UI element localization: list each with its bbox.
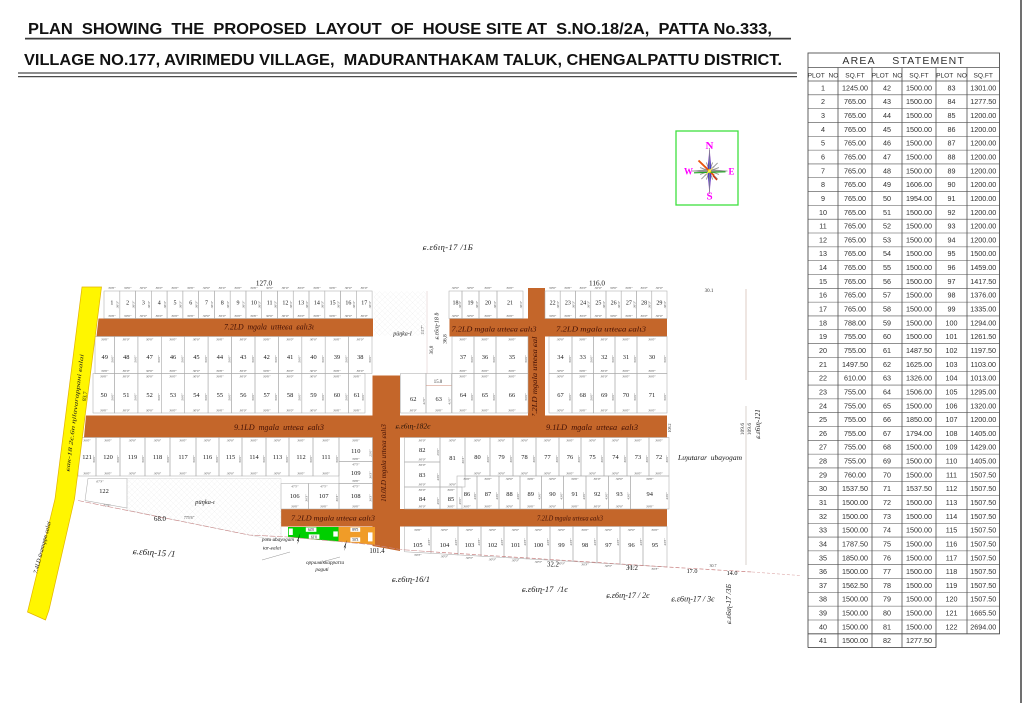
svg-text:50'0″: 50'0″ [181,393,185,401]
svg-text:30'0″: 30'0″ [571,504,579,508]
svg-text:ɕ.ε6ιɳ-16/1: ɕ.ε6ιɳ-16/1 [391,574,430,584]
svg-text:36'3″: 36'3″ [458,300,462,308]
svg-text:71: 71 [883,484,891,493]
svg-text:1500.00: 1500.00 [906,125,932,134]
svg-text:1500.00: 1500.00 [906,305,932,314]
svg-text:30'0″: 30'0″ [419,504,427,508]
svg-text:N: N [706,140,714,152]
svg-text:108.2: 108.2 [667,424,672,433]
svg-text:ɕ.ε6ιɳ-17 /1Б: ɕ.ε6ιɳ-17 /1Б [422,242,473,252]
svg-text:1500.00: 1500.00 [906,539,932,548]
svg-text:SQ.FT: SQ.FT [974,73,993,80]
svg-text:78: 78 [521,454,527,461]
svg-text:121: 121 [946,609,958,618]
svg-text:1794.00: 1794.00 [906,429,932,438]
svg-text:30'0″: 30'0″ [616,504,624,508]
svg-text:43'5″: 43'5″ [663,538,667,546]
svg-text:1500.00: 1500.00 [906,291,932,300]
svg-text:30'0″: 30'0″ [352,457,360,461]
svg-text:1500.00: 1500.00 [906,622,932,631]
svg-text:ɕ.ε6ιɳ-17 /1є: ɕ.ε6ιɳ-17 /1є [521,584,568,594]
svg-text:67'3″: 67'3″ [96,480,104,484]
svg-text:66: 66 [509,392,515,399]
svg-text:112: 112 [296,454,305,461]
svg-text:1562.50: 1562.50 [842,581,868,590]
svg-text:1500.00: 1500.00 [906,470,932,479]
svg-text:30'0″: 30'0″ [452,286,460,290]
svg-text:1500.00: 1500.00 [970,249,996,258]
svg-text:56: 56 [240,392,246,399]
svg-text:36'3″: 36'3″ [602,300,606,308]
svg-text:50'0″: 50'0″ [568,393,572,401]
svg-text:30'0″: 30'0″ [447,488,455,492]
svg-text:30'0″: 30'0″ [557,408,565,412]
svg-text:21: 21 [819,360,827,369]
svg-text:99: 99 [558,542,564,549]
svg-text:7.2LD mɡala uτŧŧeɕa ɕalι3ι: 7.2LD mɡala uτŧŧeɕa ɕalι3ι [224,322,315,332]
svg-text:30'0″: 30'0″ [240,408,248,412]
svg-text:23: 23 [565,301,571,307]
svg-text:30'0″: 30'0″ [123,408,131,412]
svg-text:72: 72 [656,454,662,461]
svg-text:30'0″: 30'0″ [600,455,604,463]
svg-text:30'0″: 30'0″ [250,439,258,443]
svg-text:36'3″: 36'3″ [289,300,293,308]
svg-text:50'0″: 50'0″ [227,355,231,363]
svg-text:30'0″: 30'0″ [419,457,427,461]
svg-text:1277.50: 1277.50 [970,97,996,106]
svg-text:56: 56 [883,277,891,286]
svg-text:30'0″: 30'0″ [357,338,365,342]
svg-text:755.00: 755.00 [844,429,866,438]
svg-text:50'0″: 50'0″ [663,355,667,363]
svg-text:30'0″: 30'0″ [310,338,318,342]
svg-text:610.00: 610.00 [844,374,866,383]
svg-text:30'3″: 30'3″ [605,564,613,568]
svg-text:30'0″: 30'0″ [557,375,565,379]
svg-text:94: 94 [948,235,956,244]
svg-text:1200.00: 1200.00 [970,415,996,424]
svg-text:36'3″: 36'3″ [632,300,636,308]
svg-text:30'0″: 30'0″ [298,286,306,290]
svg-text:1500.00: 1500.00 [842,567,868,576]
svg-text:57: 57 [883,291,891,300]
svg-text:50'0″: 50'0″ [335,455,339,463]
svg-text:30'0″: 30'0″ [333,369,341,373]
svg-text:1500.00: 1500.00 [906,332,932,341]
svg-text:3: 3 [821,111,825,120]
svg-text:30'0″: 30'0″ [665,455,669,463]
svg-text:1320.00: 1320.00 [970,401,996,410]
svg-text:30'0″: 30'0″ [274,439,282,443]
svg-text:47: 47 [883,153,891,162]
svg-text:43'5″: 43'5″ [427,538,431,546]
svg-text:88: 88 [948,153,956,162]
svg-text:50'0″: 50'0″ [157,393,161,401]
svg-text:97: 97 [948,277,956,286]
svg-text:30'0″: 30'0″ [216,375,224,379]
svg-text:30'0″: 30'0″ [612,471,620,475]
svg-text:765.00: 765.00 [844,305,866,314]
svg-text:1500.00: 1500.00 [906,97,932,106]
svg-text:82: 82 [419,447,425,454]
svg-text:36'3″: 36'3″ [210,300,214,308]
svg-text:30'0″: 30'0″ [104,439,112,443]
svg-text:113: 113 [273,454,282,461]
svg-text:79: 79 [883,595,891,604]
svg-text:90: 90 [549,491,555,498]
svg-text:30'0″: 30'0″ [601,369,609,373]
svg-text:117: 117 [178,454,188,461]
svg-text:74: 74 [883,526,891,535]
svg-text:36'3″: 36'3″ [194,300,198,308]
svg-text:96: 96 [628,542,634,549]
svg-text:113: 113 [946,498,957,507]
svg-text:755.00: 755.00 [844,457,866,466]
svg-text:30'0″: 30'0″ [527,504,535,508]
svg-text:W: W [684,167,693,177]
svg-text:30.1: 30.1 [705,289,714,294]
svg-text:30'0″: 30'0″ [557,338,565,342]
svg-text:41'0″: 41'0″ [422,397,426,405]
svg-text:30'0″: 30'0″ [352,504,360,508]
svg-text:1429.00: 1429.00 [970,443,996,452]
svg-text:11: 11 [267,301,273,307]
svg-text:50'0″: 50'0″ [251,393,255,401]
svg-text:30'0″: 30'0″ [286,338,294,342]
svg-text:765.00: 765.00 [844,139,866,148]
svg-text:30'0″: 30'0″ [83,439,91,443]
svg-text:765.00: 765.00 [844,235,866,244]
svg-text:62: 62 [410,396,416,403]
svg-text:30'0″: 30'0″ [616,477,624,481]
svg-text:30'0″: 30'0″ [169,369,177,373]
svg-text:30'0″: 30'0″ [291,504,299,508]
svg-text:ŧar-ɕalai: ŧar-ɕalai [263,546,282,552]
svg-text:53: 53 [883,235,891,244]
svg-text:15.0: 15.0 [434,380,443,385]
svg-text:30'0″: 30'0″ [187,286,195,290]
svg-text:30'0″: 30'0″ [203,286,211,290]
svg-text:30'0″: 30'0″ [108,314,116,318]
svg-text:1506.00: 1506.00 [906,387,932,396]
svg-text:91: 91 [572,491,578,498]
svg-text:30'3″: 30'3″ [461,456,465,464]
svg-text:47'5″: 47'5″ [352,485,360,489]
svg-text:25: 25 [819,415,827,424]
svg-text:68: 68 [580,392,586,399]
svg-text:45'0″: 45'0″ [458,497,462,505]
svg-text:32.2: 32.2 [547,562,559,569]
svg-text:30'0″: 30'0″ [628,528,636,532]
svg-text:50'0″: 50'0″ [215,455,219,463]
svg-text:30: 30 [819,484,827,493]
svg-text:101: 101 [946,332,958,341]
svg-text:59: 59 [310,392,316,399]
svg-text:36'3″: 36'3″ [475,300,479,308]
svg-text:19: 19 [468,301,474,307]
svg-text:1625.00: 1625.00 [906,360,932,369]
svg-text:E: E [728,167,734,177]
svg-text:30'0″: 30'0″ [216,338,224,342]
svg-text:30'0″: 30'0″ [124,314,132,318]
svg-text:50'0″: 50'0″ [633,393,637,401]
svg-text:45: 45 [883,125,891,134]
svg-text:30'0″: 30'0″ [481,338,489,342]
svg-text:30'0″: 30'0″ [193,369,201,373]
svg-text:1500.00: 1500.00 [906,166,932,175]
svg-text:765.00: 765.00 [844,153,866,162]
svg-text:30'0″: 30'0″ [108,286,116,290]
svg-text:1500.00: 1500.00 [842,595,868,604]
svg-text:poŧu uƅaуoɡam: poŧu uƅaуoɡam [261,537,294,543]
svg-text:5: 5 [173,301,176,307]
svg-text:30'0″: 30'0″ [310,375,318,379]
svg-text:1500.00: 1500.00 [842,498,868,507]
svg-text:33: 33 [819,526,827,535]
svg-text:43'0″: 43'0″ [665,492,669,500]
svg-text:9.1LD mɡala uτŧeɕa ɕalι3: 9.1LD mɡala uτŧeɕa ɕalι3 [234,422,324,432]
svg-text:30'0″: 30'0″ [216,408,224,412]
svg-text:26: 26 [611,301,617,307]
svg-text:30'0″: 30'0″ [449,482,457,486]
svg-text:755.00: 755.00 [844,332,866,341]
svg-text:76: 76 [883,553,891,562]
svg-text:42: 42 [263,354,269,361]
svg-text:81: 81 [883,622,891,631]
svg-text:78: 78 [883,581,891,590]
svg-text:30'0″: 30'0″ [286,375,294,379]
svg-text:1500.00: 1500.00 [906,595,932,604]
svg-text:30'0″: 30'0″ [219,286,227,290]
svg-text:5: 5 [821,139,825,148]
svg-text:30'0″: 30'0″ [610,314,618,318]
svg-text:1500.00: 1500.00 [906,111,932,120]
svg-text:50'0″: 50'0″ [110,393,114,401]
svg-text:30'0″: 30'0″ [227,439,235,443]
svg-text:30'0″: 30'0″ [484,504,492,508]
svg-text:30'0″: 30'0″ [463,504,471,508]
svg-text:110: 110 [351,448,360,455]
svg-text:30'0″: 30'0″ [566,471,574,475]
svg-text:43'0″: 43'0″ [626,492,630,500]
svg-text:20: 20 [485,301,491,307]
svg-text:114: 114 [946,512,957,521]
svg-text:30'0″: 30'0″ [345,286,353,290]
svg-text:92: 92 [948,208,956,217]
svg-text:30'0″: 30'0″ [193,338,201,342]
svg-text:30'3″: 30'3″ [558,561,566,565]
svg-text:30'0″: 30'0″ [357,369,365,373]
svg-text:1200.00: 1200.00 [970,125,996,134]
svg-text:30'3″: 30'3″ [441,555,449,559]
svg-text:120: 120 [103,454,113,461]
svg-text:30'0″: 30'0″ [648,369,656,373]
svg-text:10: 10 [819,208,827,217]
svg-text:27: 27 [626,301,632,307]
svg-text:22: 22 [819,374,827,383]
svg-text:30'0″: 30'0″ [263,375,271,379]
svg-text:30'0″: 30'0″ [171,314,179,318]
svg-text:36'3″: 36'3″ [617,300,621,308]
svg-text:30'0″: 30'0″ [474,471,482,475]
svg-text:43'0″: 43'0″ [604,492,608,500]
svg-text:9: 9 [821,194,825,203]
svg-text:30'0″: 30'0″ [459,369,467,373]
svg-text:68: 68 [883,443,891,452]
svg-text:91: 91 [948,194,956,203]
svg-text:16: 16 [819,291,827,300]
svg-text:58: 58 [287,392,293,399]
svg-text:VILLAGE NO.177, AVIRIMEDU VILL: VILLAGE NO.177, AVIRIMEDU VILLAGE, MADUR… [24,52,782,69]
svg-text:760.00: 760.00 [844,470,866,479]
svg-text:104: 104 [946,374,958,383]
svg-text:75: 75 [589,454,595,461]
svg-text:49: 49 [883,180,891,189]
svg-text:65: 65 [482,392,488,399]
svg-text:15: 15 [819,277,827,286]
svg-text:30'0″: 30'0″ [169,375,177,379]
svg-text:1: 1 [110,301,113,307]
svg-text:89: 89 [528,491,534,498]
svg-text:30'0″: 30'0″ [333,338,341,342]
svg-text:105: 105 [413,542,423,549]
svg-text:1850.00: 1850.00 [906,415,932,424]
svg-text:30'0″: 30'0″ [171,286,179,290]
svg-text:109.6: 109.6 [747,423,753,436]
svg-text:50'0″: 50'0″ [285,455,289,463]
svg-text:30'0″: 30'0″ [580,286,588,290]
svg-text:50'0″: 50'0″ [524,355,528,363]
svg-text:765.00: 765.00 [844,111,866,120]
svg-text:SQ.FT: SQ.FT [845,73,864,80]
svg-text:105: 105 [946,387,958,396]
svg-text:30'3″: 30'3″ [512,559,520,563]
svg-text:119: 119 [946,581,957,590]
svg-text:1500.00: 1500.00 [906,401,932,410]
svg-text:109.6: 109.6 [740,423,746,436]
svg-text:36,8: 36,8 [430,345,435,354]
svg-text:30'0″: 30'0″ [595,314,603,318]
svg-text:30'0″: 30'0″ [474,439,482,443]
svg-text:118: 118 [946,567,957,576]
svg-text:43'0″: 43'0″ [537,492,541,500]
svg-text:AREA STATEMENT: AREA STATEMENT [842,55,965,67]
svg-text:765.00: 765.00 [844,180,866,189]
svg-text:1500.00: 1500.00 [906,498,932,507]
svg-text:43: 43 [883,97,891,106]
svg-text:84: 84 [419,496,426,503]
svg-text:102: 102 [946,346,958,355]
svg-text:1200.00: 1200.00 [970,166,996,175]
svg-text:44: 44 [217,354,224,361]
svg-text:50'0″: 50'0″ [492,355,496,363]
svg-text:30'0″: 30'0″ [484,314,492,318]
svg-text:43'5″: 43'5″ [500,538,504,546]
svg-text:30'0″: 30'0″ [193,408,201,412]
svg-text:28: 28 [819,457,827,466]
svg-text:30'0″: 30'0″ [282,286,290,290]
svg-text:50'0″: 50'0″ [192,455,196,463]
svg-text:30'0″: 30'0″ [623,455,627,463]
svg-text:30'0″: 30'0″ [646,477,654,481]
svg-text:36'3″: 36'3″ [116,300,120,308]
svg-text:30'0″: 30'0″ [645,455,649,463]
svg-text:30'0″: 30'0″ [489,528,497,532]
svg-text:30'0″: 30'0″ [449,439,457,443]
svg-text:1261.50: 1261.50 [970,332,996,341]
svg-text:30'0″: 30'0″ [467,314,475,318]
svg-text:71: 71 [649,392,655,399]
svg-text:27: 27 [819,443,827,452]
svg-text:30'0″: 30'0″ [169,408,177,412]
svg-text:1200.00: 1200.00 [970,111,996,120]
svg-text:1500.00: 1500.00 [906,83,932,92]
svg-text:84: 84 [948,97,956,106]
svg-text:101.4: 101.4 [369,548,385,555]
svg-text:120: 120 [946,595,958,604]
svg-text:30'0″: 30'0″ [594,477,602,481]
svg-text:30'0″: 30'0″ [656,314,664,318]
svg-text:30'0″: 30'0″ [282,314,290,318]
svg-text:50'0″: 50'0″ [470,355,474,363]
svg-text:30'0″: 30'0″ [610,286,618,290]
svg-text:30'0″: 30'0″ [498,471,506,475]
svg-text:32: 32 [601,354,607,361]
svg-text:6: 6 [821,153,825,162]
svg-text:1295.00: 1295.00 [970,387,996,396]
svg-text:30'0″: 30'0″ [333,375,341,379]
svg-text:98: 98 [948,291,956,300]
svg-text:1500.00: 1500.00 [842,526,868,535]
svg-text:28: 28 [641,301,647,307]
svg-text:1500.00: 1500.00 [906,526,932,535]
svg-text:30'0″: 30'0″ [154,439,162,443]
svg-text:50'0″: 50'0″ [166,455,170,463]
svg-text:43'5″: 43'5″ [639,538,643,546]
svg-text:1200.00: 1200.00 [970,208,996,217]
svg-text:25'0″: 25'0″ [368,449,372,457]
svg-text:51: 51 [883,208,891,217]
svg-text:95: 95 [652,542,658,549]
svg-text:30'0″: 30'0″ [203,314,211,318]
svg-text:14.0: 14.0 [727,570,738,577]
svg-text:30'0″: 30'0″ [625,314,633,318]
svg-text:45: 45 [193,354,199,361]
svg-text:755.00: 755.00 [844,346,866,355]
svg-text:29: 29 [819,470,827,479]
svg-text:36'3″: 36'3″ [226,300,230,308]
svg-text:50'0″: 50'0″ [181,355,185,363]
svg-text:1487.50: 1487.50 [906,346,932,355]
svg-text:30'0″: 30'0″ [622,338,630,342]
svg-text:1200.00: 1200.00 [970,180,996,189]
svg-text:765.00: 765.00 [844,125,866,134]
svg-text:30'0″: 30'0″ [622,408,630,412]
svg-text:30'0″: 30'0″ [498,439,506,443]
svg-text:30'3″: 30'3″ [304,494,308,502]
svg-text:1500.00: 1500.00 [906,249,932,258]
svg-text:9.1LD mɡala uτŧeɕa ɕalι3: 9.1LD mɡala uτŧeɕa ɕalι3 [546,423,638,432]
svg-text:10: 10 [251,301,257,307]
svg-text:118: 118 [153,454,162,461]
svg-text:89'5: 89'5 [352,528,358,532]
svg-text:110: 110 [946,457,957,466]
svg-text:50'0″: 50'0″ [227,393,231,401]
svg-text:1500.00: 1500.00 [906,567,932,576]
svg-text:765.00: 765.00 [844,263,866,272]
svg-text:86: 86 [948,125,956,134]
